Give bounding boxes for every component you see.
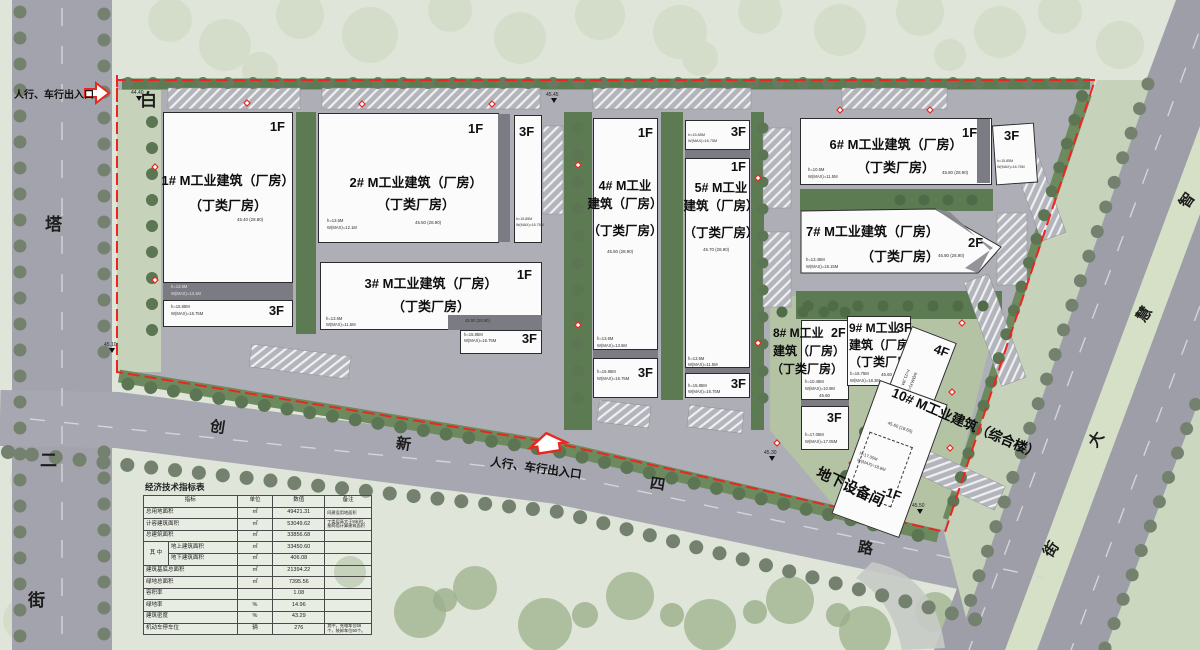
building-3-elevation: 45.50 (28.90): [465, 319, 490, 323]
height-note: W(MAX)=16.75M: [516, 224, 544, 228]
building-5-roofband: [685, 150, 750, 158]
floor-label: 3F: [1004, 129, 1019, 142]
height-note: W(MAX)=16.75M: [997, 166, 1025, 170]
building-5-type: （丁类厂房）: [683, 227, 758, 240]
height-note: h=13.6M: [326, 317, 342, 321]
col-header: 备注: [325, 496, 372, 508]
floor-label: 3F: [522, 332, 537, 345]
building-4-name2: 建筑（厂房）: [587, 198, 662, 211]
site-plan-canvas: 44.40 45.45 45.10 45.30 45.50 白 塔 二 街 创 …: [0, 0, 1200, 650]
street-bottom-char-1: 创: [209, 419, 226, 436]
street-bottom-char-3: 四: [649, 476, 666, 493]
spot-elevation: 45.30: [764, 450, 777, 456]
building-1: 1F 3F 1# M工业建筑（厂房） （丁类厂房） 45.40 (28.80) …: [163, 112, 293, 327]
floor-label: 1F: [731, 160, 746, 173]
floor-label: 3F: [731, 125, 746, 138]
floor-label: 3F: [269, 304, 284, 317]
street-bottom-char-4: 路: [857, 540, 874, 557]
table-row: 绿地率%14.96: [144, 600, 372, 612]
building-2-roofband: [498, 114, 510, 242]
floor-label: 1F: [962, 126, 977, 139]
indicator-table-title: 经济技术指标表: [145, 481, 373, 493]
table-row: 计容建筑面积㎡53049.62丁类层高大于8米时，按两倍计算建筑面积: [144, 519, 372, 531]
height-note: W(MAX)=11.5M: [688, 363, 718, 367]
building-2-type: （丁类厂房）: [377, 198, 455, 211]
building-5-name2: 建筑（厂房）: [683, 200, 758, 213]
height-note: h=15.85M: [516, 218, 532, 222]
height-note: h=15.85M: [464, 333, 483, 337]
col-header: 单位: [237, 496, 273, 508]
height-note: h=13.6M: [688, 357, 704, 361]
building-5-elevation: 45.70 (28.90): [703, 248, 729, 252]
building-9-name: 9# M工业: [849, 322, 900, 334]
building-5: 3F 1F 3F h=15.85M W(MAX)=16.75M 5# M工业 建…: [685, 120, 750, 398]
height-note: h=13.45M: [806, 258, 825, 262]
height-note: h=15.85M: [997, 160, 1013, 164]
table-row: 总建筑面积㎡33856.68: [144, 530, 372, 542]
floor-label: 1F: [270, 120, 285, 133]
floor-label: 1F: [638, 126, 653, 139]
spot-elevation: 45.45: [546, 92, 559, 98]
height-note: W(MAX)=16.75M: [597, 377, 629, 381]
table-row: 机动车停车位辆276其中，充电车位56个，装卸车位50个。: [144, 623, 372, 635]
building-6-roofband: [977, 119, 990, 183]
indicator-table: 经济技术指标表 指标 单位 数值 备注 总用地面积㎡49421.31同建设用地面…: [143, 481, 373, 635]
height-note: h=13.6M: [171, 285, 187, 289]
building-6-annex: 3F h=15.85M W(MAX)=16.75M: [994, 124, 1036, 184]
table-row: 建筑密度%43.29: [144, 611, 372, 623]
building-4-type: （丁类厂房）: [587, 225, 662, 238]
floor-label: 3F: [519, 125, 534, 138]
building-7-type: （丁类厂房）: [861, 250, 939, 263]
building-1-type: （丁类厂房）: [189, 199, 267, 212]
table-row: 其 中地上建筑面积㎡33450.60: [144, 542, 372, 554]
floor-label: 1F: [468, 122, 483, 135]
building-6: 1F 6# M工业建筑（厂房） （丁类厂房） h=10.6M W(MAX)=11…: [800, 118, 992, 185]
height-note: h=10.6M: [808, 168, 824, 172]
floor-label: 3F: [638, 366, 653, 379]
col-header: 数值: [273, 496, 325, 508]
height-note: W(MAX)=13.6M: [597, 344, 627, 348]
building-2: 1F 3F 2# M工业建筑（厂房） （丁类厂房） h=13.6M W(MAX)…: [318, 113, 544, 245]
height-note: h=13.6M: [597, 337, 613, 341]
street-left-char-3: 二: [40, 452, 57, 469]
height-note: W(MAX)=16.75M: [688, 140, 717, 144]
height-note: h=13.6M: [327, 219, 343, 223]
height-note: W(MAX)=16.75M: [171, 312, 203, 316]
street-bottom-char-2: 新: [395, 436, 412, 453]
table-header-row: 指标 单位 数值 备注: [144, 496, 372, 508]
height-note: W(MAX)=16.75M: [464, 339, 496, 343]
spot-elevation: 45.50: [912, 503, 925, 509]
floor-label: 3F: [827, 412, 842, 425]
height-note: W(MAX)=16.75M: [688, 390, 720, 394]
table-row: 建筑基底总面积㎡21394.22: [144, 565, 372, 577]
street-left-char-1: 白: [140, 92, 157, 109]
height-note: W(MAX)=11.5M: [326, 323, 356, 327]
building-1-name: 1# M工业建筑（厂房）: [162, 174, 295, 187]
building-9-elevation: 45.60: [881, 373, 892, 377]
building-3-name: 3# M工业建筑（厂房）: [365, 277, 498, 290]
building-4-elevation: 45.50 (28.90): [607, 250, 633, 254]
height-note: W(MAX)=15.15M: [806, 265, 838, 269]
street-left-char-2: 塔: [45, 216, 62, 233]
table-row: 容积率1.08: [144, 588, 372, 600]
height-note: h=15.85M: [597, 370, 616, 374]
height-note: W(MAX)=10.9M: [805, 387, 835, 391]
height-note: h=15.85M: [688, 384, 707, 388]
height-note: W(MAX)=13.1M: [171, 292, 201, 296]
table-row: 地下建筑面积㎡406.08: [144, 553, 372, 565]
building-3-roofband: [448, 315, 542, 330]
building-6-type: （丁类厂房）: [857, 161, 935, 174]
building-5-name: 5# M工业: [695, 182, 748, 195]
building-7-name: 7# M工业建筑（厂房）: [806, 225, 939, 238]
building-6-elevation: 45.80 (28.90): [942, 171, 968, 175]
indicator-table-grid: 指标 单位 数值 备注 总用地面积㎡49421.31同建设用地面积 计容建筑面积…: [143, 495, 372, 635]
height-note: W(MAX)=17.05M: [805, 440, 837, 444]
floor-label: 2F: [968, 236, 983, 249]
merge-cell: 其 中: [144, 542, 169, 565]
col-header: 指标: [144, 496, 238, 508]
building-1-elevation: 45.40 (28.80): [237, 218, 263, 222]
building-8-elevation: 45.60: [819, 394, 830, 398]
table-row: 绿地总面积㎡7395.56: [144, 577, 372, 589]
height-note: h=15.85M: [688, 134, 705, 138]
height-note: h=17.05M: [805, 433, 824, 437]
building-8: 2F 3F 8# M工业 建筑（厂房） （丁类厂房） h=10.45M W(MA…: [793, 320, 851, 450]
building-8-name: 8# M工业: [773, 327, 824, 339]
building-4: 1F 3F 4# M工业 建筑（厂房） （丁类厂房） 45.50 (28.90)…: [593, 118, 658, 398]
height-note: W(MAX)=12.1M: [327, 226, 357, 230]
spot-elevation: 45.10: [104, 342, 117, 348]
building-4-roofband: [593, 350, 658, 358]
building-7: 2F 7# M工业建筑（厂房） （丁类厂房） h=13.45M W(MAX)=1…: [800, 208, 1002, 274]
height-note: h=16.75M: [850, 372, 869, 376]
height-note: W(MAX)=18.3M: [850, 379, 880, 383]
street-left-char-4: 街: [28, 592, 45, 609]
floor-label: 1F: [517, 268, 532, 281]
height-note: h=15.85M: [171, 305, 190, 309]
floor-label: 3F: [731, 377, 746, 390]
table-row: 总用地面积㎡49421.31同建设用地面积: [144, 507, 372, 519]
building-3-type: （丁类厂房）: [392, 300, 470, 313]
building-2-elevation: 45.50 (28.90): [415, 221, 441, 225]
building-7-elevation: 45.80 (28.90): [938, 254, 964, 258]
floor-label: 2F: [831, 327, 846, 340]
building-4-name: 4# M工业: [599, 180, 652, 193]
height-note: h=10.45M: [805, 380, 824, 384]
entrance-label-top: 人行、车行出入口: [14, 86, 94, 101]
building-6-name: 6# M工业建筑（厂房）: [830, 138, 963, 151]
building-3: 1F 3F 3# M工业建筑（厂房） （丁类厂房） h=13.6M W(MAX)…: [320, 262, 542, 354]
building-8-name2: 建筑（厂房）: [773, 345, 845, 357]
building-2-name: 2# M工业建筑（厂房）: [350, 176, 483, 189]
height-note: W(MAX)=11.5M: [808, 175, 838, 179]
building-8-type: （丁类厂房）: [771, 363, 843, 375]
